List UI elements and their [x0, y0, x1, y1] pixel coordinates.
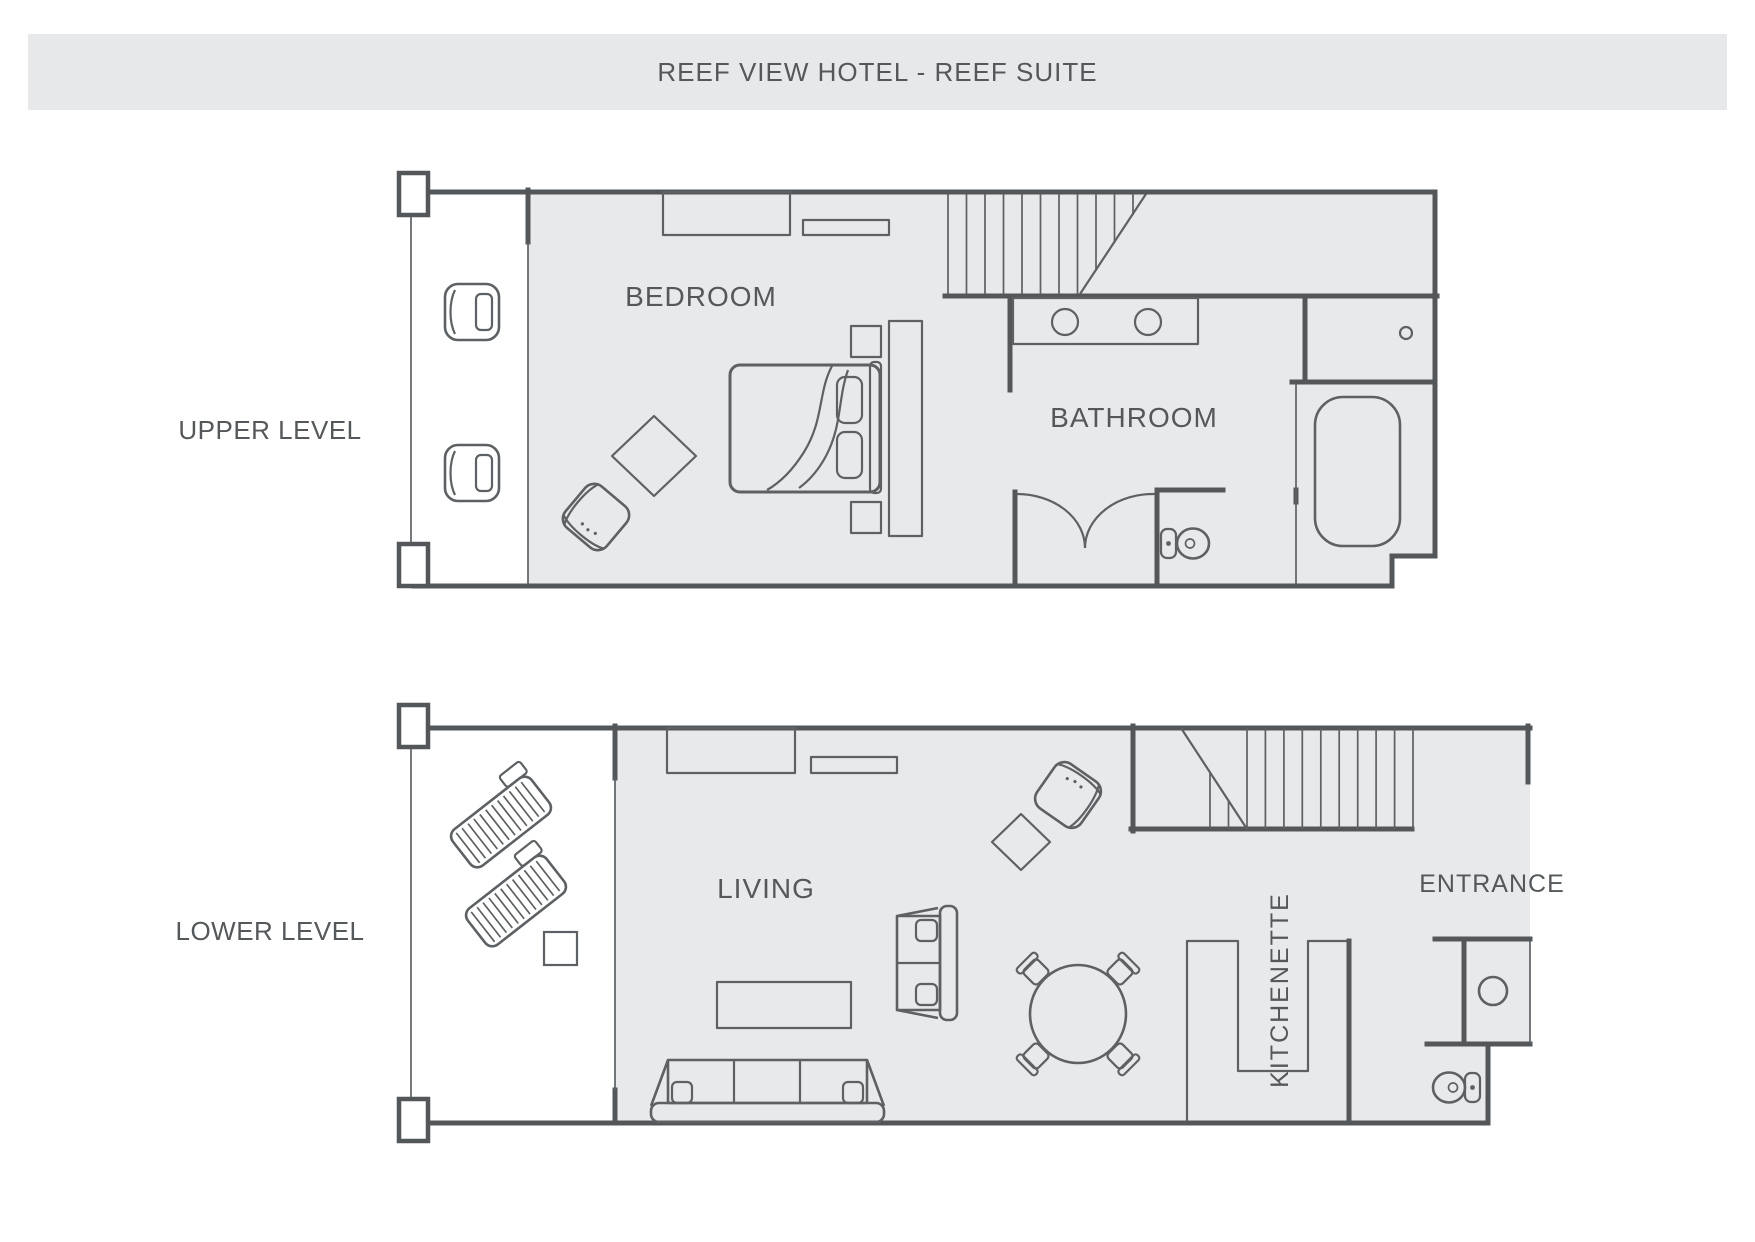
living-label: LIVING	[717, 873, 815, 904]
floorplan-page: REEF VIEW HOTEL - REEF SUITE UPPER LEVEL…	[0, 0, 1755, 1242]
bathroom-label: BATHROOM	[1050, 402, 1218, 433]
balcony-chair	[445, 284, 499, 340]
balcony-post	[399, 1099, 428, 1141]
balcony-post	[399, 705, 428, 747]
upper-level-floorplan: BEDROOM BATHROOM	[399, 173, 1437, 588]
entrance-label: ENTRANCE	[1419, 870, 1565, 898]
lower-level-floorplan: LIVING KITCHENETTE ENTRANCE	[399, 705, 1565, 1141]
balcony-chair	[445, 445, 499, 501]
balcony-post	[399, 544, 428, 586]
kitchenette-label: KITCHENETTE	[1266, 892, 1294, 1088]
upper-room-floor	[528, 190, 1437, 588]
balcony-post	[399, 173, 428, 215]
floorplan-canvas: BEDROOM BATHROOM	[0, 0, 1755, 1242]
balcony-side-table	[544, 932, 577, 965]
bedroom-label: BEDROOM	[625, 281, 777, 312]
